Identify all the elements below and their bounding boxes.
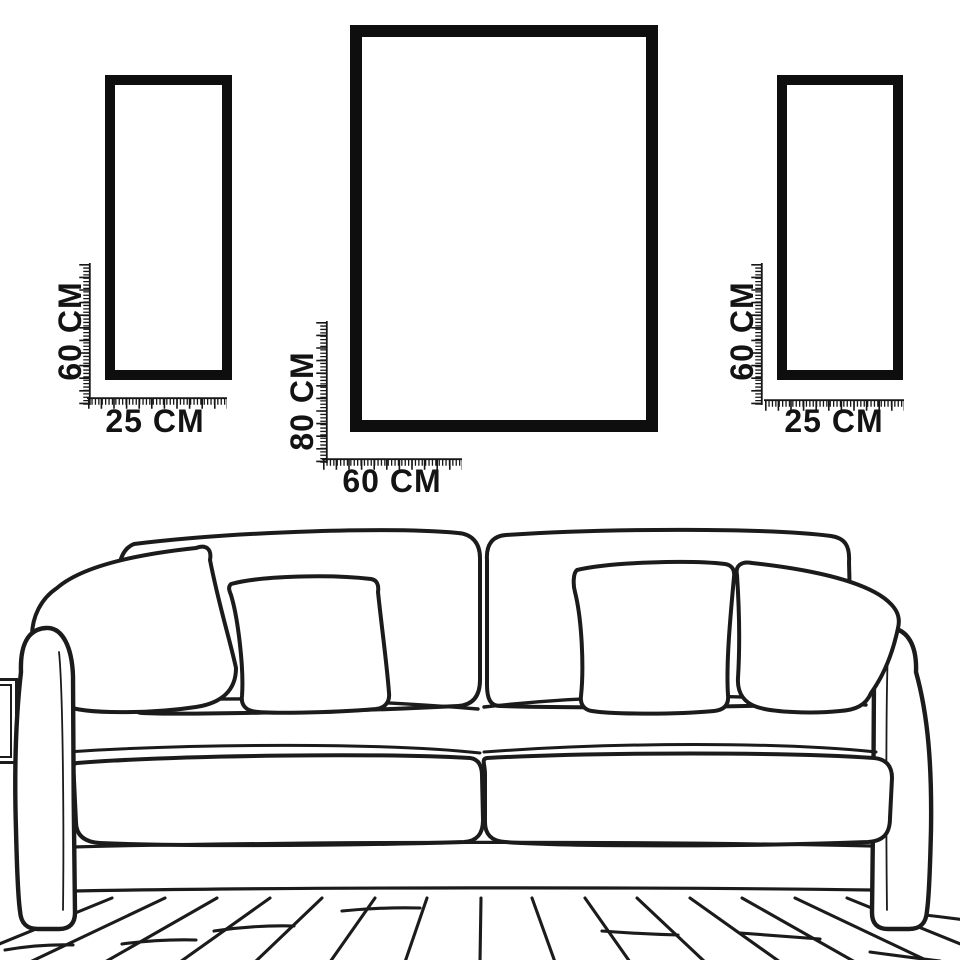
width-label-center-frame: 60 CM [317, 464, 467, 498]
art-frame-center [350, 25, 658, 432]
sofa-base-rail-bottom [74, 888, 871, 891]
wall-art-size-guide: 60 CM 25 CM 80 CM 60 CM 60 CM 25 CM [0, 0, 960, 960]
sofa-seat-sketch-line-right [484, 745, 876, 753]
sofa-pillow-outer-right [737, 563, 899, 713]
sofa-seat-sketch-line-left [66, 745, 480, 753]
width-label-left-frame: 25 CM [80, 404, 230, 438]
sofa-pillow-inner-left [229, 576, 389, 712]
floor-plank-lines [0, 898, 960, 960]
height-label-center-frame: 80 CM [285, 326, 319, 476]
art-frame-left [105, 75, 232, 380]
height-label-left-frame: 60 CM [53, 256, 87, 406]
height-label-right-frame: 60 CM [725, 256, 759, 406]
art-frame-right [777, 75, 903, 380]
width-label-right-frame: 25 CM [759, 404, 909, 438]
sofa-pillow-inner-right [574, 562, 735, 714]
sofa-seat-cushion-right [484, 754, 892, 846]
sofa-illustration [0, 500, 960, 960]
sofa-armrest-left [15, 628, 75, 929]
sofa-seat-cushion-left [73, 755, 483, 845]
